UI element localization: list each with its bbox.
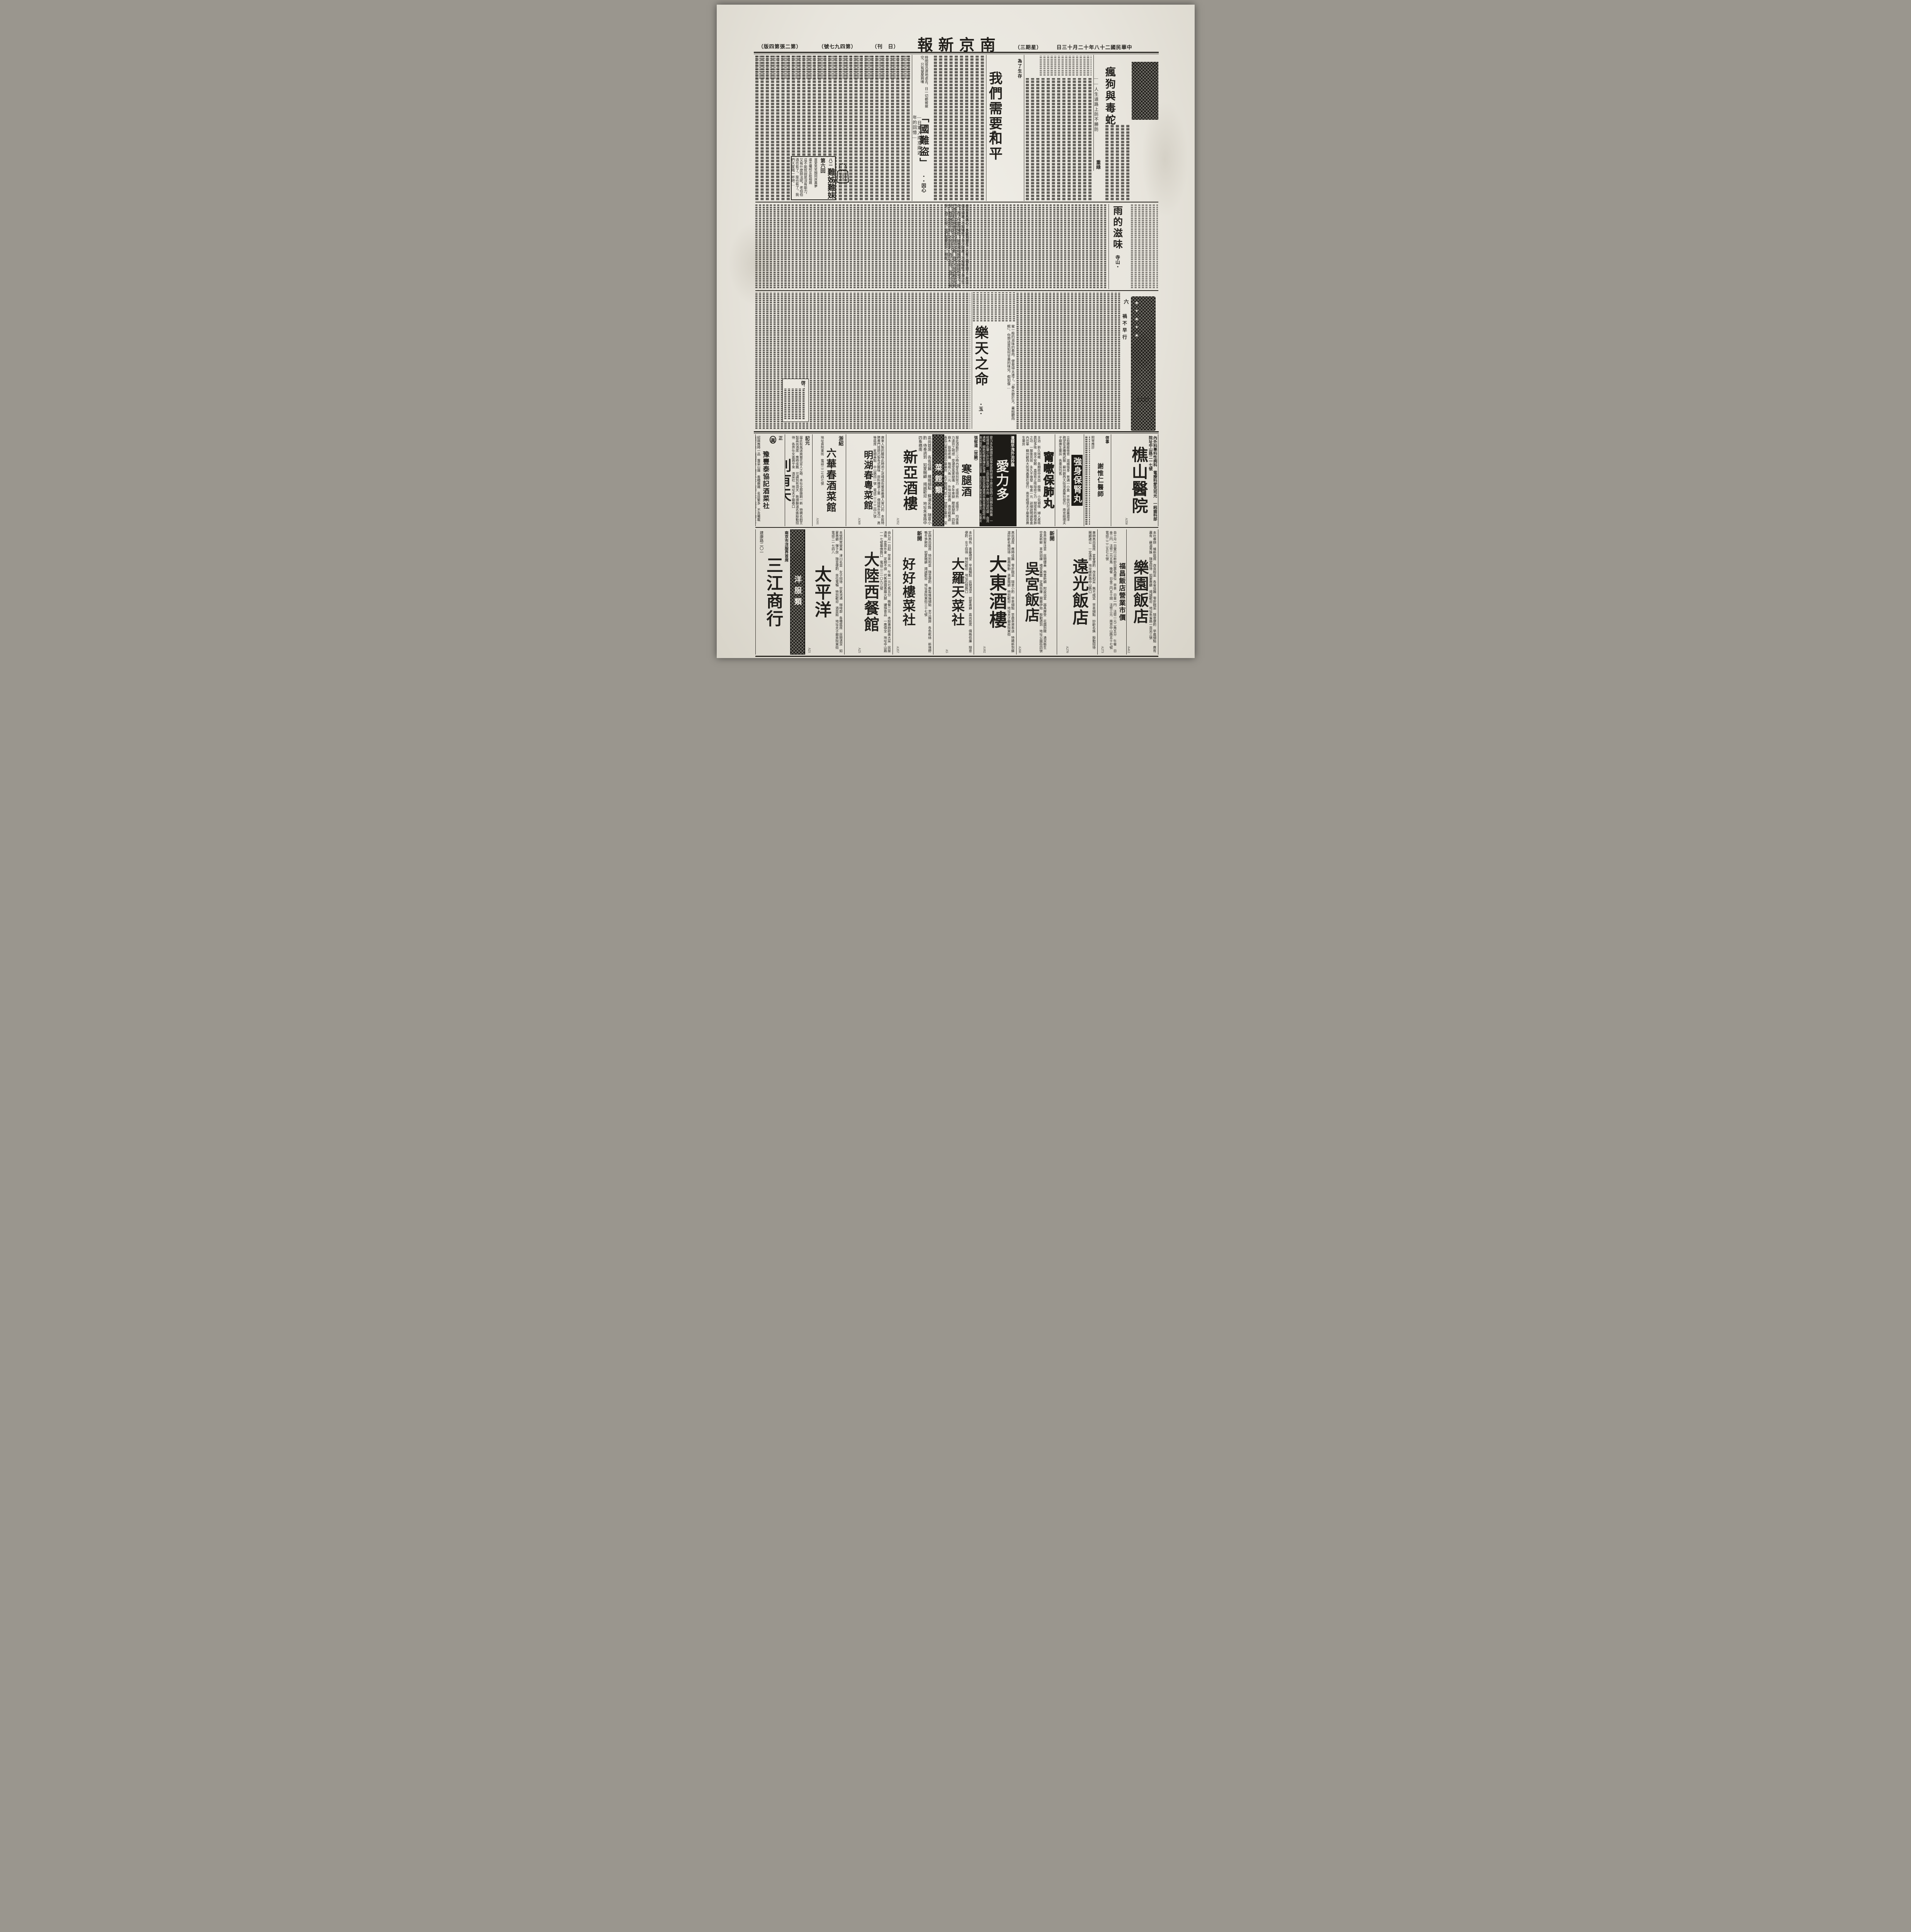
ad-text: 自十月一日實行以新鈔日票為單位 早茶 日金一円 法幣一元二角五分 午餐 日金二円… — [1105, 531, 1117, 653]
ad-code: A25 — [858, 648, 861, 653]
body-text-texture — [1040, 56, 1092, 76]
ad-title: 愛力多 — [994, 459, 1008, 501]
article-author-peace: 倩・ — [991, 131, 998, 140]
ad-text: 照常應診 — [1091, 436, 1095, 525]
body-text-texture — [973, 292, 1015, 321]
ad-text: 紹興應時一品 蓴菜山雞 香糟嫩雞 名目繁多 不及備載 嫩肥羊糕 西湖醋魚 隨意小… — [755, 436, 761, 525]
ad-title: 吳宮飯店 — [1023, 561, 1038, 623]
ad-title: 福昌飯店營業市價 — [1118, 563, 1125, 621]
ads-bottom-rule — [755, 656, 1158, 657]
figure-sketch-icon — [834, 162, 852, 185]
ad-code: A260 — [1018, 646, 1022, 653]
ad-logo-zhen: 眞 — [770, 436, 776, 444]
ad-kicker: 正 — [777, 436, 784, 525]
ad-qiaoshan-hospital: 內外科專科性病科 電療科愛克司光 一純齒科部 院址中山路二一七號 樵山醫院 A3… — [1111, 434, 1158, 526]
ad-code: A102 — [983, 646, 986, 653]
ad-title: 明湖春粵菜館 — [862, 450, 872, 510]
ad-text: 由九月一日起 早茶一元 午餐一元七角五分 晚餐二元 本館專辦歐美大菜 房屋清雅 … — [879, 531, 891, 653]
article-excerpt-peace: 說出來真痛心，事變到現在，已有二個年頭了，在這二個年頭裏，不知犧牲了多少財產！不… — [934, 204, 969, 287]
ad-title: 遠光飯店 — [1070, 558, 1087, 626]
ad-text: 高尚筵席 各省佳餚 維揚細點 蘇滬名姝 隨意小酌 侍奉週到 如蒙賜顧 竭誠歡迎 … — [917, 436, 931, 525]
ad-qiangshen-baoshenwan: 強身保腎丸 立愈腰痠倦背 滋補強身 普通一小盒 不效仍可退藥還洋 務望從速購備試… — [1055, 434, 1084, 526]
ad-text: 建康路二〇一 — [758, 531, 763, 653]
ad-hantuijiu: 張郁道（效驗） 寒腿酒 服此酒能於二小時內發生特別效力 或微熱 或微汗 均係藥力… — [944, 434, 979, 526]
ad-fuchang-hotel-prices: 福昌飯店營業市價 自十月一日實行以新鈔日票為單位 早茶 日金一円 法幣一元二角五… — [1097, 529, 1126, 655]
ad-title: 謝惟仁醫師 — [1096, 463, 1103, 498]
ad-title: 太平洋 — [813, 565, 830, 619]
ad-text: 主治 新久咳嗽 各期痰中夾血 癆傷 小兒頓咳 婦人產咳 晨起多咳 夜不安眠 直接… — [1022, 436, 1041, 525]
article-excerpt-rain: 蜜一般的滋味的春雨，便覺得太遠了。「春水碧於天，畫船聽雨眠」，你想這是如何甘美的… — [997, 325, 1015, 423]
ad-text: 地址貢院東街 電話二二七四七號 — [820, 436, 824, 525]
ad-kicker: 浙紹 — [837, 436, 845, 525]
body-text-texture — [934, 56, 985, 200]
edition-label: （版四第張二第） — [758, 43, 802, 50]
ad-ningsou-baofeiwan: 甯嗽保肺丸 主治 新久咳嗽 各期痰中夾血 癆傷 小兒頓咳 婦人產咳 晨起多咳 夜… — [1016, 434, 1055, 526]
ad-kicker: 南京市洋服界首席 — [783, 531, 789, 653]
newspaper-page: （版四第張二第） （號七九四第） （刊 日） 報新京南 （三期星） 日三十月二十… — [717, 5, 1195, 658]
decorative-banner-column: ★✦★✦★ — [1131, 296, 1156, 431]
ad-title: 大東酒樓 — [988, 555, 1006, 629]
ad-title: 甯嗽保肺丸 — [1042, 451, 1053, 509]
ad-title: 強身保腎丸 — [1071, 455, 1083, 506]
ad-doctor-notice: 啓事 謝惟仁醫師 照常應診 — [1084, 434, 1111, 526]
serial-book-title: 難姊難妹 — [827, 168, 835, 199]
ad-kicker: 啓事 — [1104, 436, 1110, 525]
ad-yufengtai: 正 眞 豫豐泰協記酒菜社 紹興應時一品 蓴菜山雞 香糟嫩雞 名目繁多 不及備載 … — [755, 434, 785, 526]
column-rule — [986, 55, 986, 201]
column-six-title: 禍不早行 — [1122, 314, 1128, 342]
ad-dalu-western-restaurant: 由九月一日起 早茶一元 午餐一元七角五分 晚餐二元 本館專辦歐美大菜 房屋清雅 … — [844, 529, 893, 655]
ad-kicker: 張郁道（效驗） — [973, 436, 978, 525]
ad-code: A161 — [816, 518, 819, 525]
header-double-rule — [754, 52, 1159, 54]
ad-text: 專辦高尚筵席 宴會便酌 改良和菜 無不咸宜 早茶細點 妙齡名姝 殷勤招待 賜顧諸… — [1088, 531, 1096, 653]
column-rule — [1109, 204, 1109, 289]
body-text-texture — [755, 56, 911, 79]
ad-title: 新亞酒樓 — [901, 449, 916, 511]
ad-ailiduo: 遺精早洩外治妙藥 愛力多 愛力多為德國性病專家愛特那博士原方發明之固精外用新藥 … — [979, 434, 1016, 526]
ad-minghuchun: 廣東人製的臘味此時用之送禮或佐餐是最適人胃口的 本館特聘專門技師巧製各式臘味 原… — [846, 434, 886, 526]
ad-sanjiang-shanghang: 南京市洋服界首席 三江商行 建康路二〇一 — [755, 529, 790, 655]
ad-title: 豫豐泰協記酒菜社 — [762, 451, 769, 510]
decorative-banner-top — [1132, 62, 1158, 120]
article-author-maddog: 重綠 — [1095, 160, 1102, 169]
article-author-fate: ・玉・ — [978, 402, 984, 416]
ad-kicker: 新開 — [1048, 531, 1056, 653]
ad-code: A350 — [1125, 518, 1128, 525]
ad-category-strip-tailors: 洋服類 — [790, 529, 805, 655]
ad-text: 服此酒能於二小時內發生特別效力 或微熱 或微汗 均係藥力達到之明證 受潮受風寒腿… — [944, 436, 959, 525]
serial-couplet-right: 買愛笑笑顏同床異夢 — [814, 158, 818, 198]
ad-dadong-jiulou: 高尚酒席 應時佳餚 零折碗菜 隨意小酌 早茶細點 早晨茶資奉送 特聘新到蘇滬妙齡… — [974, 529, 1016, 655]
column-six-number: 六 — [1122, 299, 1130, 304]
ad-text: 內外科專科性病科 電療科愛克司光 一純齒科部 院址中山路二一七號 — [1148, 436, 1157, 525]
ad-leyuan-hotel: 本社專辦 維新筵席 改良和菜 各省佳餚 零折碗菜 隨意便酌 早晨細點 應有盡有 … — [1126, 529, 1158, 655]
ad-taipingyang: 本號照常營業 津川名菜 女子招待 空氣流通 咖啡部 各種筵席 房間清潔 如蒙惠顧… — [805, 529, 844, 655]
ad-text: 高尚酒席 應時佳餚 零折碗菜 隨意小酌 早茶細點 早晨茶資奉送 特聘新到蘇滬妙齡… — [1007, 531, 1015, 653]
ad-text: 廣東人製的臘味此時用之送禮或佐餐是最適人胃口的 本館特聘專門技師巧製各式臘味 原… — [873, 436, 884, 525]
ad-text: 愛力多為德國性病專家愛特那博士原方發明之固精外用新藥 一經擦搽此藥少許於當部 立… — [979, 436, 993, 525]
ad-title: 寒腿酒 — [960, 464, 971, 497]
ad-code: A5 — [945, 649, 949, 653]
ad-title: 別有天 — [785, 458, 791, 502]
serial-couplet-left: 遺言囑咐互助相親 — [808, 158, 813, 198]
article-title-rain: 雨的滋味 — [1112, 206, 1122, 250]
ad-text-texture — [1085, 436, 1090, 525]
article-title-maddog: 瘋狗與毒蛇 — [1104, 66, 1115, 126]
ad-wugong-hotel: 新開 各界旅客注意 房間優美 佈置新穎 附設浴室 器具摩登 花園別緻 清潔衛生 … — [1016, 529, 1057, 655]
section-rule — [755, 202, 1158, 202]
ad-text: 各界旅客注意 房間優美 佈置新穎 附設浴室 器具摩登 花園別緻 清潔衛生 空氣新… — [1039, 531, 1047, 653]
column-rule — [1024, 55, 1024, 201]
ad-title: 大陸西餐館 — [862, 551, 879, 633]
column-rule — [972, 292, 972, 429]
ad-text: 本號照常營業 津川名菜 女子招待 空氣流通 咖啡部 各種筵席 房間清潔 如蒙惠顧… — [831, 531, 843, 653]
article-excerpt-thief: 時間很迅速地逝去，日一切都被搶空，只有望屋興嘆 — [913, 56, 928, 110]
ad-kicker: 新開 — [915, 531, 923, 653]
serial-fiction-box: 難姊難妹 八二 第六回 買愛笑笑顏同床異夢 遺言囑咐互助相親 這不能就說是沒有能… — [791, 156, 836, 200]
article-author-thief: ・・因心 — [921, 174, 927, 192]
ad-yuanguang-hotel: 專辦高尚筵席 宴會便酌 改良和菜 無不咸宜 早茶細點 妙齡名姝 殷勤招待 賜顧諸… — [1057, 529, 1097, 655]
ad-title: 樵山醫院 — [1129, 446, 1146, 514]
serial-excerpt: 這不能就說是沒有能力，又有什麼辦法呢，老伯伯酒也有了，菜也有了，我們大家喝一杯吧… — [791, 158, 807, 198]
ad-text: 本社專辦 維新筵席 改良和菜 各省佳餚 零折碗菜 隨意便酌 早晨細點 應有盡有 … — [1149, 531, 1156, 653]
ad-bieyoutian: 記元 届此秋風送爽菊花宜人之時 本社全部振刷一新 特聘名廚烹製高尚酒席 應時佳餚… — [785, 434, 812, 526]
body-text-texture — [1026, 78, 1092, 200]
ad-title: 好好樓菜社 — [901, 557, 914, 627]
ad-category-strip-restaurants: 菜館類 — [932, 434, 944, 526]
ad-text: 定辦高尚筵席 特別和菜 隨意便酌 專製維揚細點 京江餚蹄 各色乾絲 新增野鴨冬笋… — [924, 531, 932, 653]
banner-star-ornaments: ★✦★✦★ — [1134, 300, 1140, 341]
ad-title: 大羅天菜社 — [950, 557, 963, 627]
ad-xinya-jiulou: 高尚筵席 各省佳餚 維揚細點 蘇滬名姝 隨意小酌 侍奉週到 如蒙賜顧 竭誠歡迎 … — [886, 434, 932, 526]
notice-text-texture — [784, 388, 806, 419]
issue-number: （號七九四第） — [819, 43, 857, 50]
ads-top-rule — [754, 431, 1159, 434]
ad-code: A412 — [1127, 646, 1131, 653]
article-title-fate: 樂天之命 — [973, 325, 988, 387]
serial-chapter: 第六回 — [819, 158, 826, 198]
ad-text: 立愈腰痠倦背 滋補強身 普通一小盒 不效仍可退藥還洋 務望從速購備試服 蘇州觀西… — [1059, 436, 1070, 525]
ad-kicker: 記元 — [804, 436, 811, 525]
date-line: 日三十月二十年八十二國民華中 — [1057, 43, 1132, 51]
ad-code: A357 — [896, 646, 899, 653]
body-text-texture — [755, 204, 1108, 288]
ad-title: 六華春酒菜館 — [825, 448, 836, 513]
weekday-label: （三期星） — [1015, 43, 1042, 51]
article-author-rain: 寺山・ — [1115, 255, 1121, 269]
ad-liuhuachun: 浙紹 六華春酒菜館 地址貢院東街 電話二二七四七號 A161 — [812, 434, 846, 526]
ad-kicker: 遺精早洩外治妙藥 — [1009, 436, 1015, 525]
notice-box: 啓： — [782, 379, 809, 422]
daily-label: （刊 日） — [872, 43, 899, 50]
article-title-peace: 我們需要和平 — [987, 71, 1002, 162]
section-rule — [755, 290, 1158, 291]
ad-haohaolou: 定辦高尚筵席 特別和菜 隨意便酌 專製維揚細點 京江餚蹄 各色乾絲 新增野鴨冬笋… — [893, 529, 933, 655]
ad-code: A21 — [808, 648, 811, 653]
ad-text: 届此秋風送爽菊花宜人之時 本社全部振刷一新 特聘名廚烹製高尚酒席 應時佳餚 可謂… — [791, 436, 803, 525]
body-text-texture — [1017, 292, 1120, 429]
body-text-texture — [1105, 124, 1129, 200]
ad-daluotian: 本社特色 喜慶禮堂 早晨麵點 房間清潔 如蒙惠顧 高尚筵席 價格低廉 隨意便酌 … — [933, 529, 974, 655]
ad-code: A369 — [858, 518, 861, 525]
category-label: 洋服類 — [792, 575, 802, 609]
article-subtitle-thief: —日軍入南京兩週年的回憶— — [912, 115, 921, 158]
ad-code: A273 — [1101, 646, 1104, 653]
ad-title: 樂園飯店 — [1132, 560, 1148, 624]
page-marker: （二三） — [1135, 396, 1152, 403]
article-kicker-peace: 為了生存 — [1017, 59, 1022, 79]
body-text-texture — [1131, 204, 1158, 288]
ad-code: A270 — [1066, 646, 1069, 653]
ad-code: A352 — [896, 518, 900, 525]
ad-title: 三江商行 — [764, 556, 782, 628]
category-label: 菜館類 — [933, 464, 943, 497]
article-subtitle-maddog: ——人生道路上防不勝防 — [1094, 76, 1098, 157]
ad-text: 本社特色 喜慶禮堂 早晨麵點 房間清潔 如蒙惠顧 高尚筵席 價格低廉 隨意便酌 … — [964, 531, 972, 653]
ads-row-divider — [755, 527, 1158, 528]
